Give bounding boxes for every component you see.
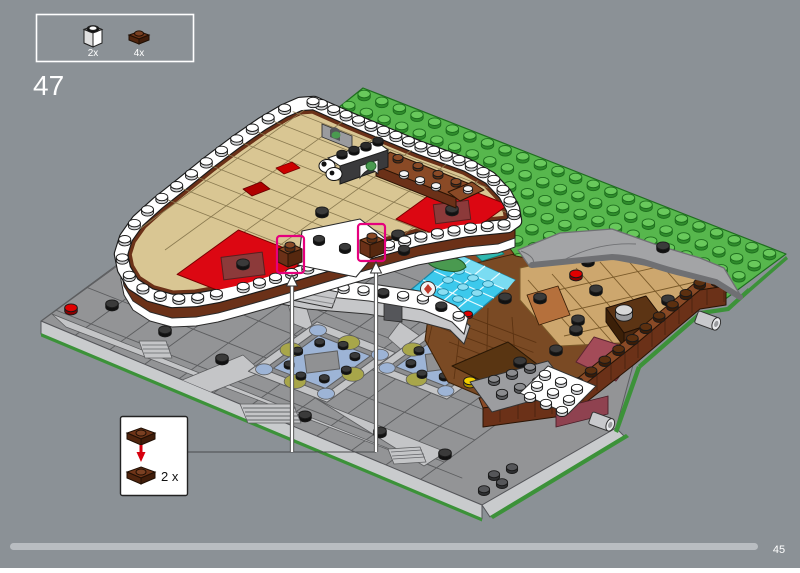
svg-text:47: 47 [33,70,64,101]
svg-text:4x: 4x [134,48,145,59]
svg-text:2x: 2x [88,48,99,59]
svg-text:45: 45 [773,544,785,556]
svg-text:2 x: 2 x [161,469,179,484]
